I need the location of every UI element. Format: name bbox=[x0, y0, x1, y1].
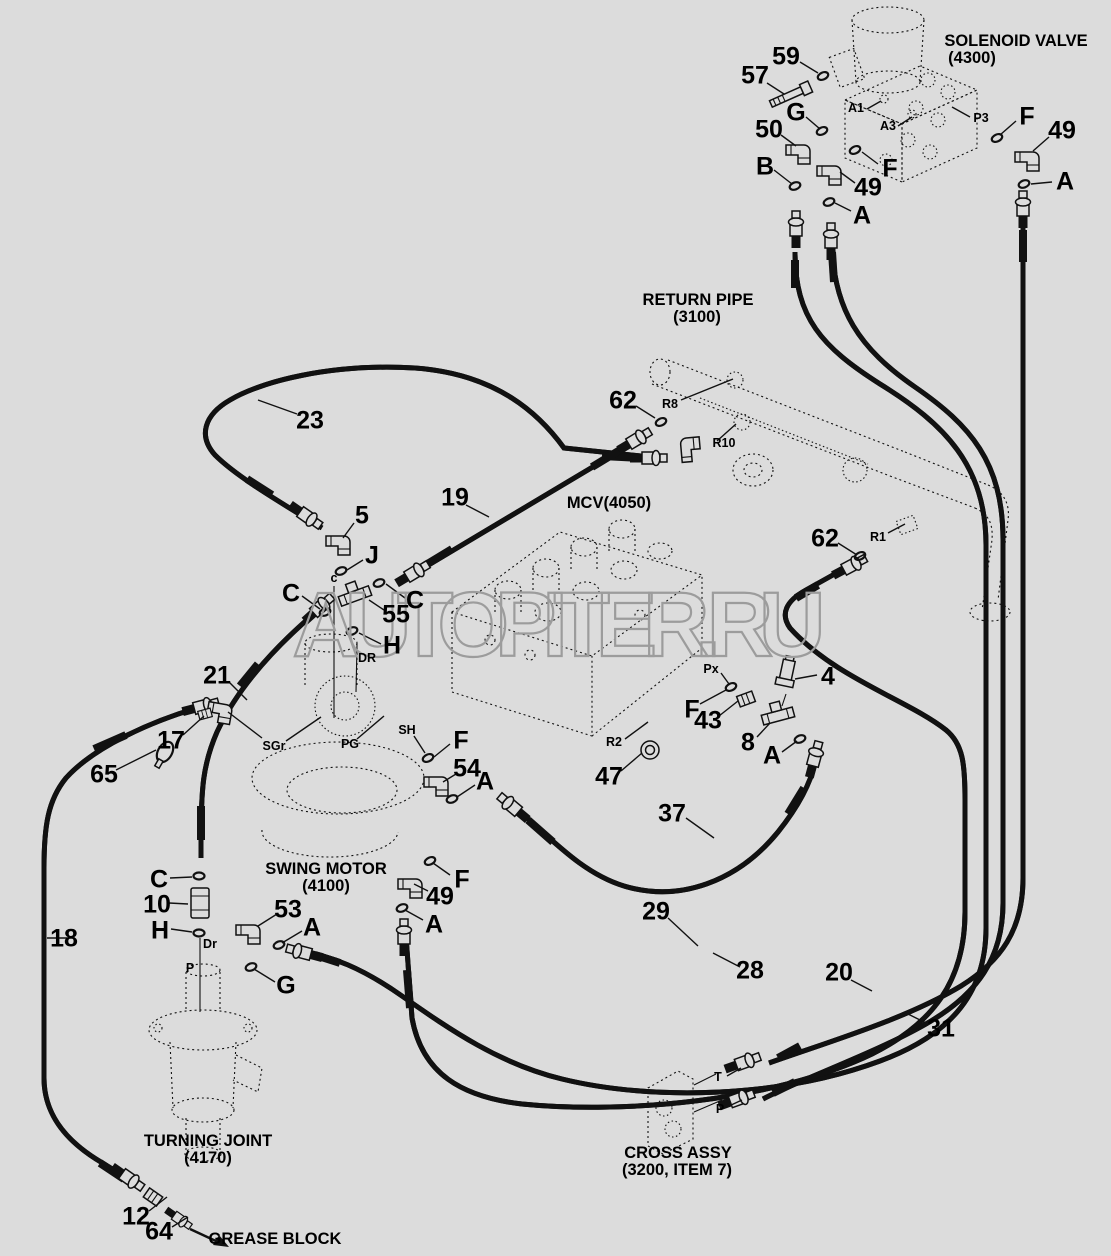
callout-J: J bbox=[365, 544, 379, 569]
callout-50: 50 bbox=[755, 118, 783, 143]
swing-motor-code: (4100) bbox=[302, 878, 350, 895]
port-SH: SH bbox=[398, 724, 415, 737]
callout-62-right: 62 bbox=[811, 527, 839, 552]
callout-17: 17 bbox=[157, 729, 185, 754]
port-T: T bbox=[714, 1071, 722, 1084]
callout-23: 23 bbox=[296, 409, 324, 434]
hoses bbox=[44, 212, 1023, 1179]
callout-49-low: 49 bbox=[426, 885, 454, 910]
callout-62-left: 62 bbox=[609, 389, 637, 414]
callout-31: 31 bbox=[927, 1017, 955, 1042]
callout-A-8: A bbox=[763, 744, 781, 769]
callout-59: 59 bbox=[772, 45, 800, 70]
port-R2: R2 bbox=[606, 736, 622, 749]
port-PG: PG bbox=[341, 738, 359, 751]
callout-28: 28 bbox=[736, 959, 764, 984]
piping-diagram: AUTOPITER.RU bbox=[0, 0, 1111, 1256]
callout-A-49low: A bbox=[425, 913, 443, 938]
callout-64: 64 bbox=[145, 1220, 173, 1245]
port-Px: Px bbox=[703, 663, 718, 676]
port-P-cross: P bbox=[716, 1103, 724, 1116]
callout-H-tee: H bbox=[383, 634, 401, 659]
callout-49-top-right: 49 bbox=[1048, 119, 1076, 144]
return-pipe-title: RETURN PIPE bbox=[643, 292, 754, 309]
callout-49-top-left: 49 bbox=[854, 176, 882, 201]
callout-C-left: C bbox=[282, 582, 300, 607]
callout-29: 29 bbox=[642, 900, 670, 925]
callout-H-hose21: H bbox=[151, 919, 169, 944]
port-R8: R8 bbox=[662, 398, 678, 411]
callout-8: 8 bbox=[741, 731, 755, 756]
callout-F-top-right: F bbox=[1019, 105, 1034, 130]
callout-F-43: F bbox=[684, 698, 699, 723]
callout-A-top-left: A bbox=[853, 204, 871, 229]
callout-G-top: G bbox=[786, 101, 805, 126]
port-SGr: SGr bbox=[263, 740, 286, 753]
parts-diagram-page: AUTOPITER.RU 595750494923195556262211765… bbox=[0, 0, 1111, 1256]
callout-F-sh: F bbox=[453, 729, 468, 754]
port-A3: A3 bbox=[880, 120, 896, 133]
solenoid-valve-title: SOLENOID VALVE bbox=[944, 33, 1087, 50]
callout-F-49low: F bbox=[454, 868, 469, 893]
port-R10: R10 bbox=[713, 437, 736, 450]
callout-37: 37 bbox=[658, 802, 686, 827]
cross-assy-drawing bbox=[648, 1071, 722, 1154]
callout-21: 21 bbox=[203, 664, 231, 689]
callout-C-hose21: C bbox=[150, 868, 168, 893]
callout-53: 53 bbox=[274, 898, 302, 923]
port-R1: R1 bbox=[870, 531, 886, 544]
callout-4: 4 bbox=[821, 665, 835, 690]
port-P3: P3 bbox=[973, 112, 988, 125]
callout-C-right: C bbox=[406, 589, 424, 614]
callout-47: 47 bbox=[595, 765, 623, 790]
callout-A-54: A bbox=[476, 770, 494, 795]
callout-18: 18 bbox=[50, 927, 78, 952]
return-pipe-code: (3100) bbox=[673, 309, 721, 326]
port-Dr: Dr bbox=[203, 938, 217, 951]
swing-motor-title: SWING MOTOR bbox=[265, 861, 387, 878]
callout-A-53: A bbox=[303, 916, 321, 941]
port-A1: A1 bbox=[848, 102, 864, 115]
callout-10: 10 bbox=[143, 893, 171, 918]
callout-65: 65 bbox=[90, 763, 118, 788]
callout-G-low: G bbox=[276, 974, 295, 999]
callout-B: B bbox=[756, 155, 774, 180]
port-P-joint: P bbox=[186, 962, 194, 975]
mcv-title: MCV(4050) bbox=[567, 495, 651, 512]
port-DR: DR bbox=[358, 652, 376, 665]
callout-5: 5 bbox=[355, 504, 369, 529]
cross-assy-title: CROSS ASSY bbox=[624, 1145, 732, 1162]
solenoid-valve-code: (4300) bbox=[948, 50, 996, 67]
callout-19: 19 bbox=[441, 486, 469, 511]
callout-F-mid-top: F bbox=[882, 157, 897, 182]
turning-joint-code: (4170) bbox=[184, 1150, 232, 1167]
port-c: c bbox=[331, 572, 338, 585]
callout-A-top-right: A bbox=[1056, 170, 1074, 195]
callout-20: 20 bbox=[825, 961, 853, 986]
turning-joint-title: TURNING JOINT bbox=[144, 1133, 272, 1150]
callout-57: 57 bbox=[741, 64, 769, 89]
cross-assy-code: (3200, ITEM 7) bbox=[622, 1162, 732, 1179]
grease-block-title: GREASE BLOCK bbox=[209, 1231, 342, 1248]
